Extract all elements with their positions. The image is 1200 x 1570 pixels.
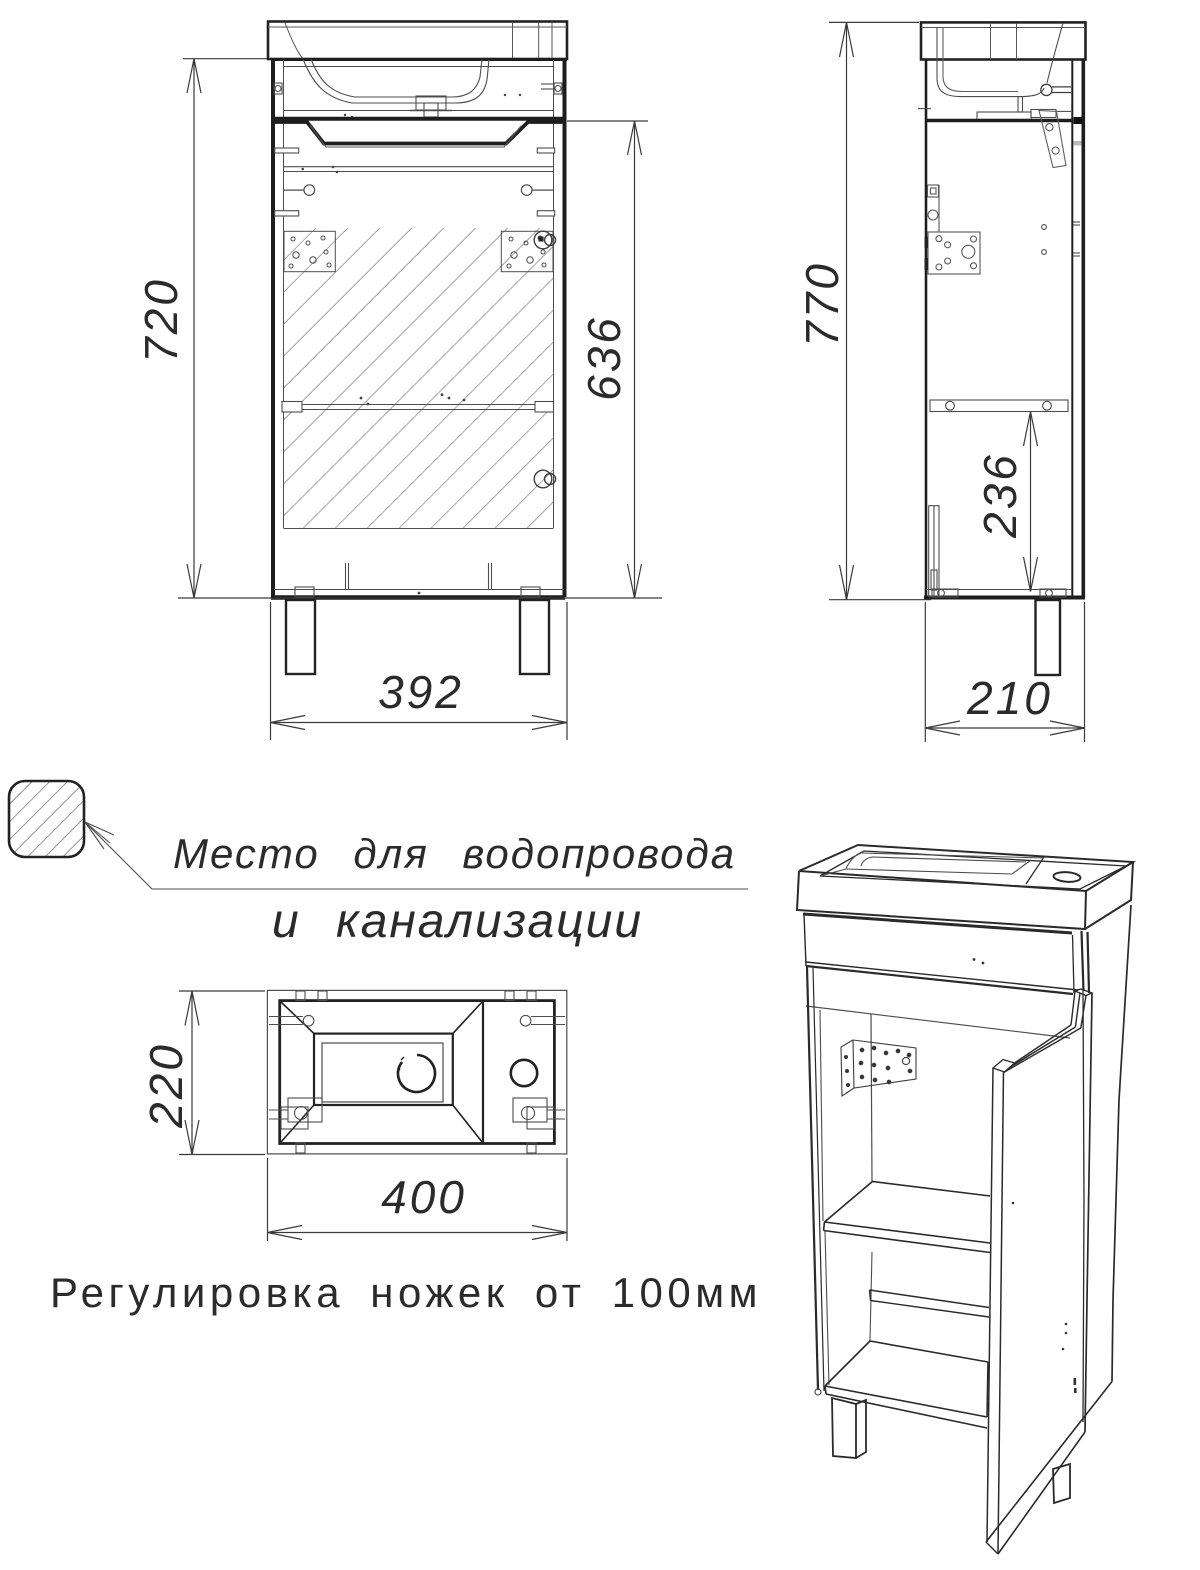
svg-text:236: 236 [974, 452, 1026, 539]
svg-text:и канализации: и канализации [272, 895, 643, 948]
svg-text:Место для водопровода: Место для водопровода [173, 830, 736, 877]
svg-text:770: 770 [796, 261, 848, 347]
svg-text:400: 400 [381, 1171, 467, 1223]
svg-text:Регулировка ножек от 100мм: Регулировка ножек от 100мм [50, 1269, 762, 1316]
svg-text:720: 720 [135, 277, 187, 363]
svg-text:636: 636 [578, 315, 630, 401]
svg-text:220: 220 [140, 1042, 192, 1129]
svg-text:392: 392 [378, 666, 464, 718]
svg-text:210: 210 [966, 672, 1053, 724]
